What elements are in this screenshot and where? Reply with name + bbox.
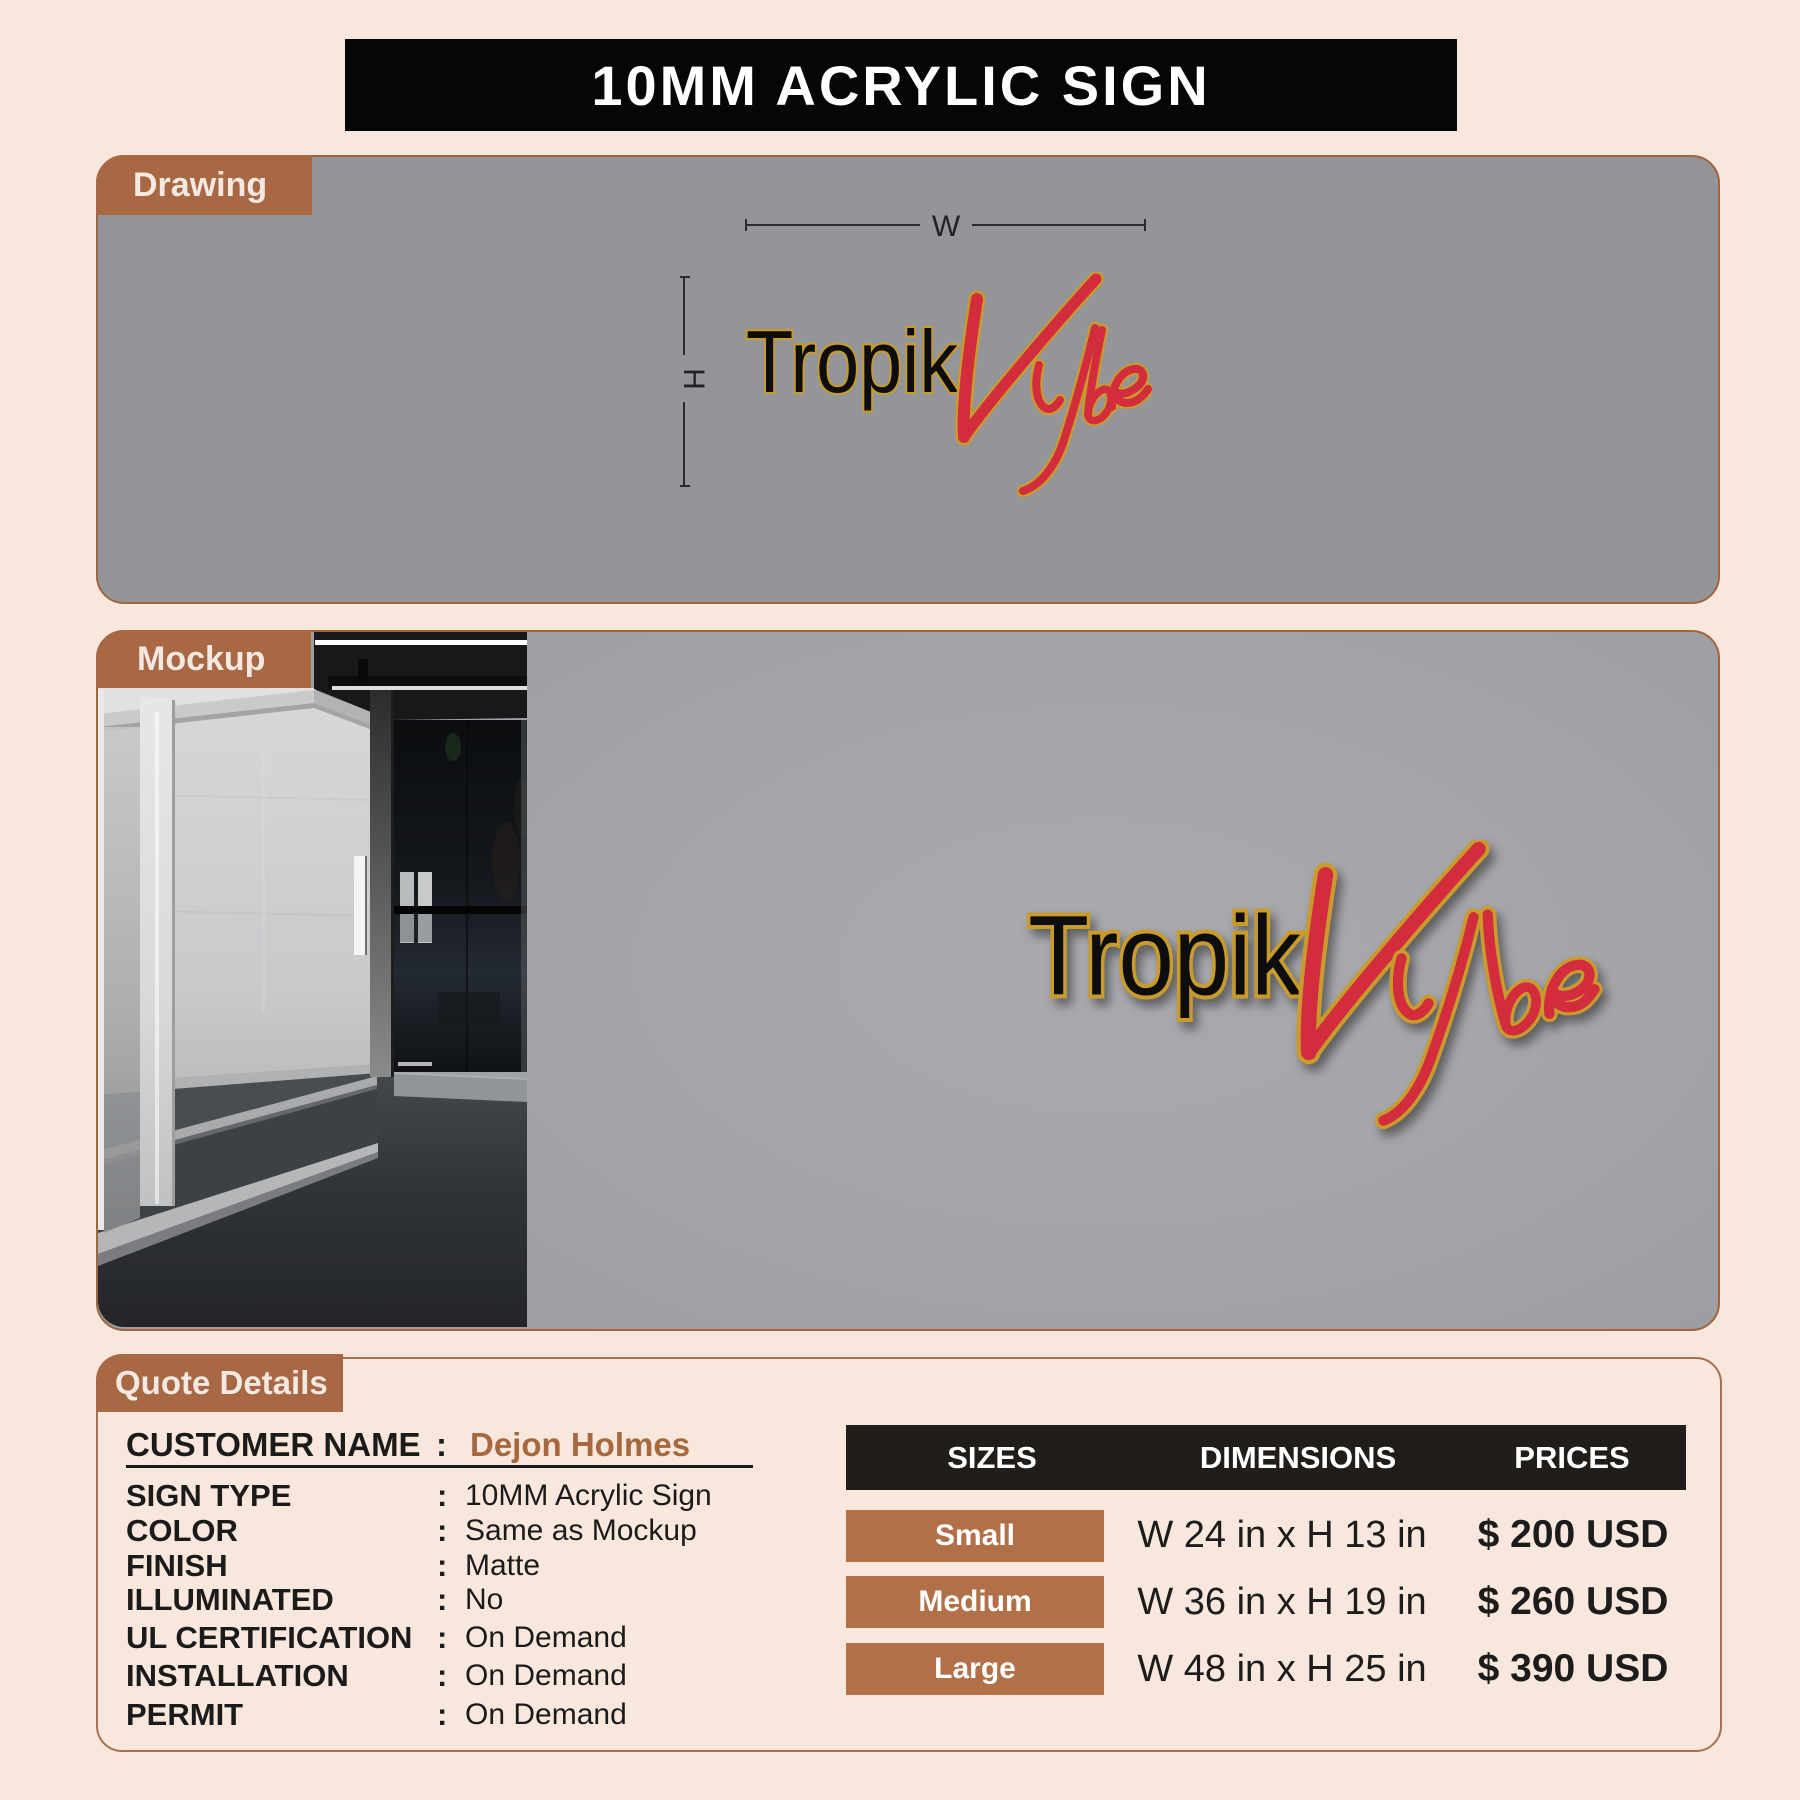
svg-text:Tropik: Tropik <box>746 313 959 411</box>
svg-text:Tropik: Tropik <box>1028 892 1302 1019</box>
svg-text:H: H <box>680 368 710 390</box>
svg-text:W: W <box>932 215 961 243</box>
